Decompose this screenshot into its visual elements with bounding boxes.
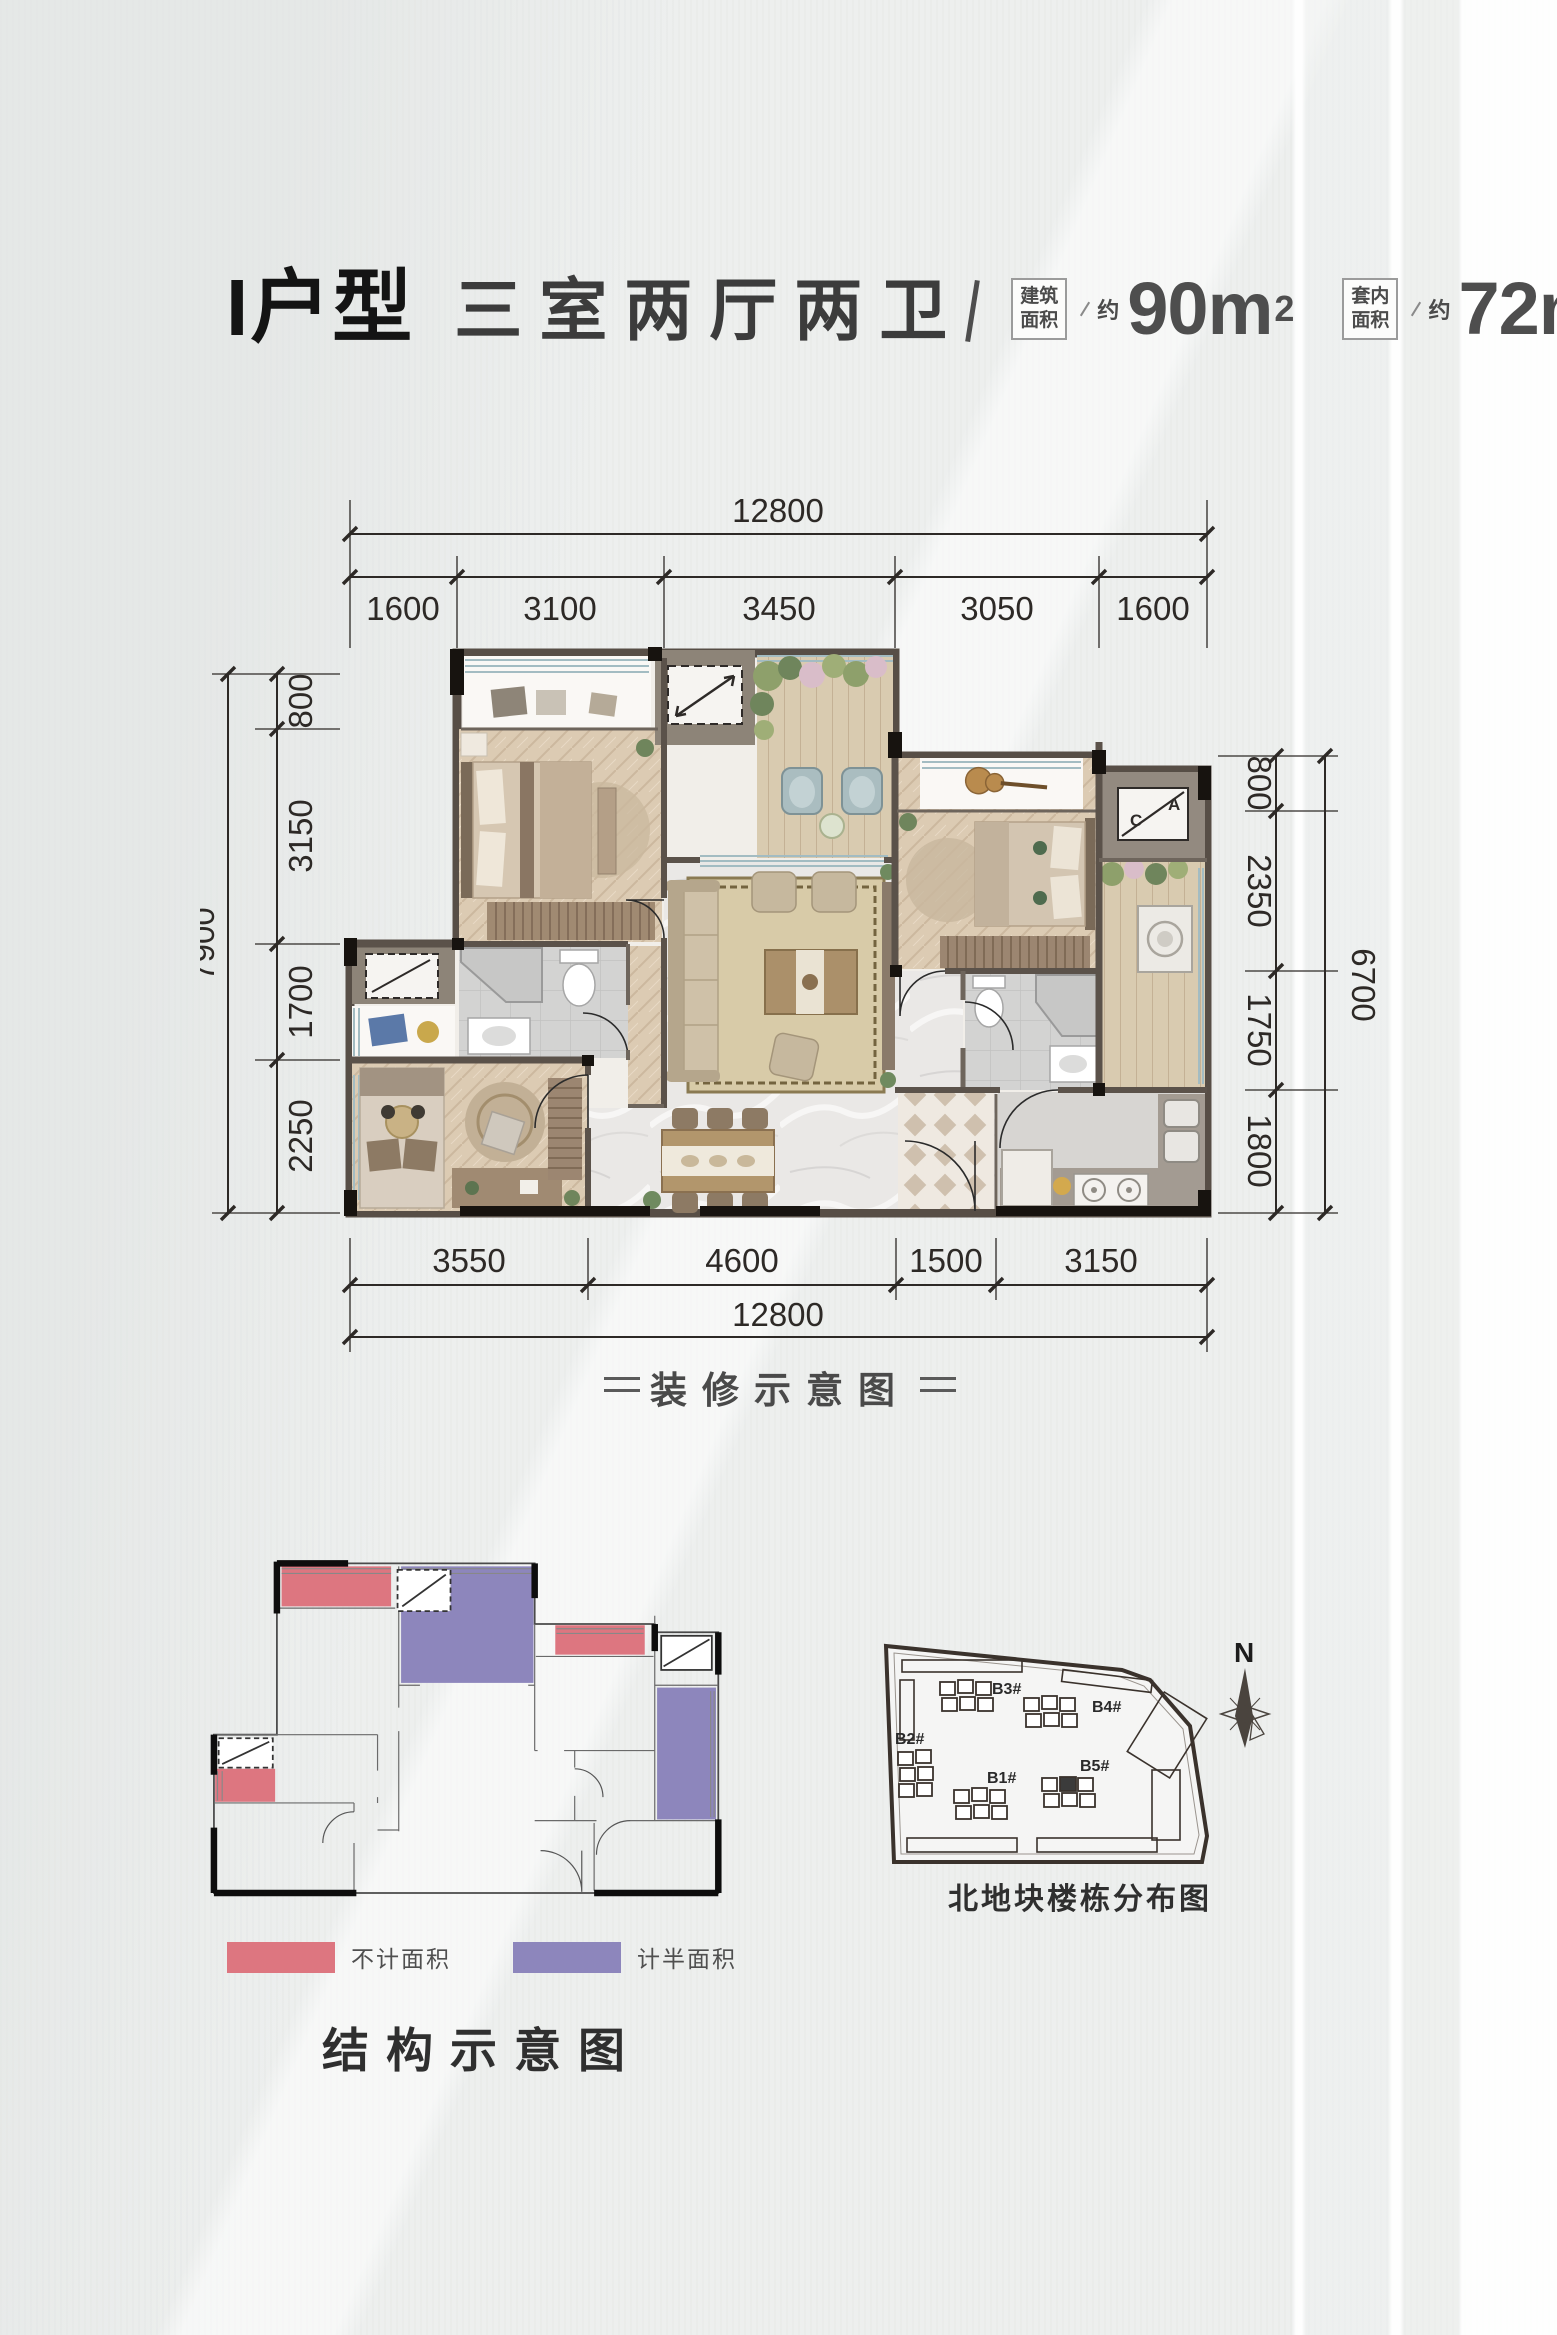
- coffee-table: [765, 950, 857, 1014]
- dim-right-seg2: 2350: [1241, 854, 1278, 927]
- plant: [880, 1072, 896, 1088]
- dim-right-seg4: 1800: [1241, 1114, 1278, 1187]
- fridge-icon: [1002, 1150, 1052, 1206]
- dim-top-seg4: 3050: [960, 590, 1033, 627]
- kitchen-sink-icon: [1164, 1100, 1199, 1162]
- toilet-icon: [560, 950, 598, 1006]
- plant: [899, 813, 917, 831]
- service-balcony: [1100, 859, 1205, 1090]
- master-bedroom: [459, 656, 662, 942]
- bathroom-2: [965, 973, 1099, 1090]
- balcony-chair: [782, 768, 822, 814]
- building-area-sup: 2: [1274, 288, 1294, 330]
- plant: [564, 1190, 580, 1206]
- no-area-zone: [555, 1625, 644, 1654]
- bed-blanket: [975, 822, 1009, 926]
- left-bay-and-ac: [352, 946, 455, 1058]
- ac-platform-top: [655, 650, 755, 745]
- highlighted-unit: [1060, 1777, 1076, 1791]
- cushion: [367, 1138, 402, 1171]
- cushion: [1033, 841, 1047, 855]
- slash-decoration: [1080, 302, 1090, 317]
- dim-right-total: 6700: [1345, 948, 1382, 1021]
- building-area-label: 建筑 面积: [1011, 278, 1067, 340]
- building-area-label-line2: 面积: [1020, 310, 1058, 331]
- plant: [1145, 863, 1167, 885]
- armchair: [768, 1032, 820, 1082]
- header: I户型 三室两厅两卫 建筑 面积 约 90m 2 套内 面积 约 72m 2: [226, 268, 1557, 348]
- pillow: [476, 831, 506, 887]
- inner-area-label-line2: 面积: [1351, 310, 1389, 331]
- dim-left-seg4: 2250: [282, 1099, 319, 1172]
- dim-chain-left: 7900 800 3150 1700 2250: [200, 667, 340, 1220]
- ac-platform-right: C A: [1101, 772, 1205, 858]
- structure-door-arcs: [323, 1769, 631, 1892]
- site-boundary: [886, 1646, 1207, 1862]
- plant: [1100, 862, 1124, 886]
- structure-plan-caption: 结构示意图: [322, 2012, 642, 2081]
- label-b3: B3#: [992, 1681, 1021, 1698]
- dim-top-seg2: 3100: [523, 590, 596, 627]
- site-plan: B3# B4# B2# B1# B5# N: [872, 1596, 1312, 1886]
- ac-letter-a: A: [1168, 795, 1180, 814]
- washing-machine: [1138, 906, 1192, 972]
- dim-top-seg5: 1600: [1116, 590, 1189, 627]
- inner-area-label: 套内 面积: [1342, 278, 1398, 340]
- sink-icon: [468, 1018, 530, 1054]
- cushion: [403, 1138, 438, 1171]
- unit-type-title: I户型: [226, 268, 414, 348]
- nightstand: [461, 733, 487, 756]
- inner-area-group: 套内 面积 约 72m 2: [1342, 272, 1557, 346]
- north-label: N: [1234, 1637, 1254, 1668]
- caption-decoration-right: [920, 1377, 956, 1392]
- dim-bottom-seg2: 4600: [705, 1242, 778, 1279]
- label-b1: B1#: [987, 1770, 1016, 1787]
- structure-legend: 不计面积 计半面积: [227, 1940, 737, 1974]
- rooms-description: 三室两厅两卫: [454, 277, 964, 345]
- bathroom-1: [459, 946, 628, 1058]
- inner-area-value: 72m: [1458, 272, 1557, 346]
- armchair: [752, 872, 796, 912]
- dining-set: [662, 1108, 774, 1213]
- dim-chain-bottom: 3550 4600 1500 3150 12800: [343, 1238, 1214, 1352]
- dim-bottom-seg3: 1500: [909, 1242, 982, 1279]
- sofa: [666, 880, 720, 1082]
- dim-right-seg1: 800: [1241, 755, 1278, 810]
- header-divider: [965, 280, 980, 342]
- structure-plan: [202, 1544, 732, 1903]
- building-area-group: 建筑 面积 约 90m 2: [1011, 272, 1294, 346]
- poster-page: I户型 三室两厅两卫 建筑 面积 约 90m 2 套内 面积 约 72m 2: [0, 0, 1557, 2335]
- kitchen: [998, 1090, 1205, 1209]
- toilet-icon: [973, 976, 1005, 1027]
- building-area-value: 90m: [1127, 272, 1272, 346]
- daybed: [360, 1068, 444, 1208]
- legend-label-half-area: 计半面积: [637, 1940, 737, 1974]
- balcony-table: [820, 814, 844, 838]
- legend-swatch-purple: [513, 1942, 621, 1973]
- decorated-floor-plan: 12800 1600 3100 3450 3050 1600 3550 4600…: [200, 478, 1400, 1358]
- bedroom-2: [897, 758, 1097, 969]
- armchair: [812, 872, 856, 912]
- entry-foyer: [898, 1092, 994, 1209]
- pillow: [1050, 875, 1082, 919]
- label-b4: B4#: [1092, 1699, 1121, 1716]
- label-b5: B5#: [1080, 1758, 1109, 1775]
- bed-runner: [520, 762, 534, 898]
- label-b2: B2#: [895, 1731, 924, 1748]
- dim-bottom-seg1: 3550: [432, 1242, 505, 1279]
- legend-item-no-area: 不计面积: [227, 1940, 451, 1974]
- north-balcony: [750, 654, 893, 858]
- slash-decoration: [1411, 302, 1421, 317]
- dim-top-seg3: 3450: [742, 590, 815, 627]
- legend-item-half-area: 计半面积: [513, 1940, 737, 1974]
- stove-icon: [1074, 1174, 1148, 1206]
- dim-left-seg2: 3150: [282, 799, 319, 872]
- dim-top-seg1: 1600: [366, 590, 439, 627]
- cushion: [1033, 891, 1047, 905]
- dim-left-seg1: 800: [282, 673, 319, 728]
- dresser: [940, 936, 1090, 968]
- dim-chain-right: 800 2350 1750 1800 6700: [1218, 749, 1382, 1220]
- no-area-zone: [215, 1769, 275, 1802]
- dim-bottom-seg4: 3150: [1064, 1242, 1137, 1279]
- building-area-approx: 约: [1097, 293, 1119, 325]
- pillow: [536, 690, 566, 715]
- sink-icon: [1050, 1046, 1097, 1082]
- round-pillow: [417, 1021, 439, 1043]
- dim-right-seg3: 1750: [1241, 993, 1278, 1066]
- decor-plan-caption: 装修示意图: [650, 1370, 910, 1411]
- pillow: [589, 692, 618, 716]
- ac-letter-c: C: [1130, 811, 1142, 830]
- plant: [636, 739, 654, 757]
- bed-headboard: [1085, 818, 1095, 930]
- no-area-zone: [282, 1566, 391, 1606]
- dim-left-seg3: 1700: [282, 965, 319, 1038]
- legend-label-no-area: 不计面积: [351, 1940, 451, 1974]
- dim-bottom-total: 12800: [732, 1296, 824, 1333]
- desk-paper: [520, 1180, 538, 1194]
- bed-blanket: [540, 762, 591, 898]
- dim-chain-top: 12800 1600 3100 3450 3050 1600: [343, 492, 1214, 648]
- shelf: [548, 1078, 582, 1180]
- site-plan-caption: 北地块楼栋分布图: [905, 1874, 1255, 1918]
- balcony-chair: [842, 768, 882, 814]
- bedroom-3: [352, 1062, 588, 1211]
- north-arrow-icon: N: [1221, 1637, 1269, 1748]
- dim-left-total: 7900: [200, 907, 221, 980]
- pillow: [368, 1014, 408, 1047]
- dim-top-total: 12800: [732, 492, 824, 529]
- floor-plan-body: C A: [344, 647, 1211, 1216]
- inner-area-label-line1: 套内: [1351, 286, 1389, 307]
- wardrobe: [487, 902, 655, 940]
- building-area-label-line1: 建筑: [1020, 286, 1058, 307]
- legend-swatch-red: [227, 1942, 335, 1973]
- inner-area-approx: 约: [1428, 293, 1450, 325]
- pillow: [1050, 826, 1082, 870]
- plant: [465, 1181, 479, 1195]
- bed-headboard: [461, 762, 473, 898]
- fruit-bowl: [1053, 1177, 1071, 1195]
- caption-decoration-left: [604, 1377, 640, 1392]
- pillow: [491, 686, 528, 717]
- decor-plan-caption-row: 装修示意图: [350, 1360, 1210, 1414]
- corridor: [628, 946, 664, 1106]
- bed-bench: [598, 788, 616, 874]
- half-area-zone: [657, 1688, 716, 1820]
- structure-body: [214, 1562, 718, 1893]
- pillow: [476, 769, 506, 825]
